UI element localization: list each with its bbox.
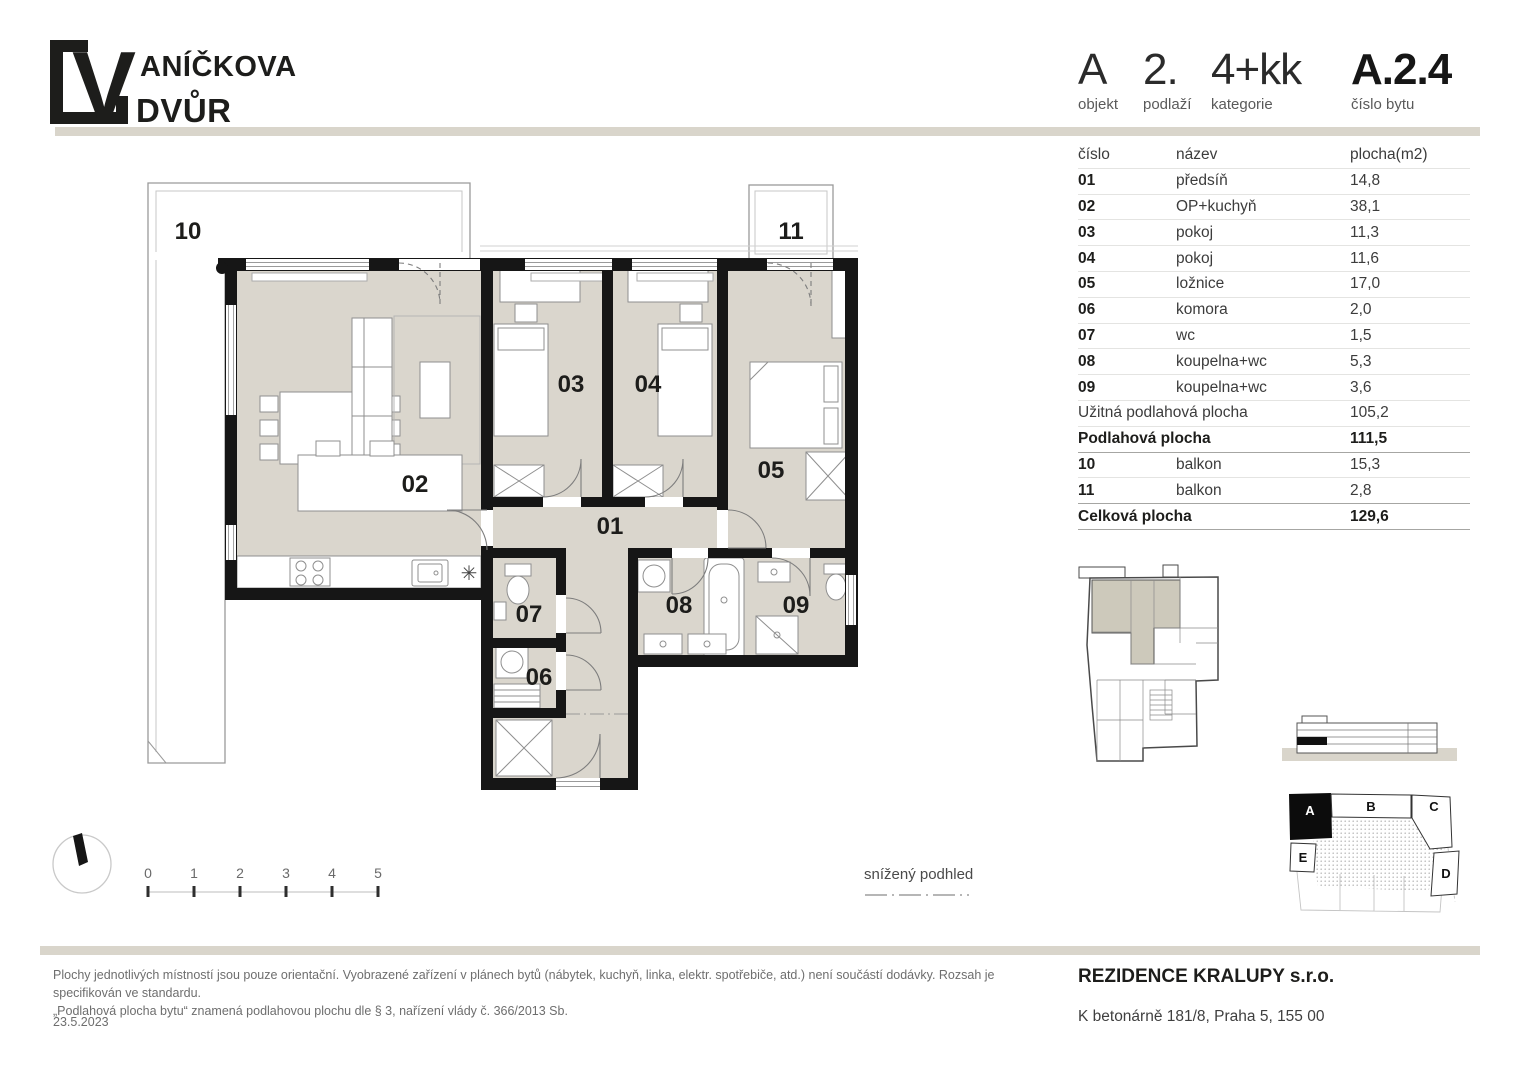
room-area-table: číslo název plocha(m2) 01předsíň14,8 02O… <box>1078 143 1470 530</box>
logo-line2: DVŮR <box>136 89 232 129</box>
scale-tick-label: 5 <box>374 865 382 881</box>
room-label-07: 07 <box>516 601 543 628</box>
table-row: 09koupelna+wc3,6 <box>1078 375 1470 401</box>
col-number: číslo <box>1078 146 1176 164</box>
floor-area-row: Podlahová plocha111,5 <box>1078 427 1470 453</box>
usable-area-row: Užitná podlahová plocha105,2 <box>1078 401 1470 427</box>
room-label-08: 08 <box>666 592 693 619</box>
room-label-01: 01 <box>597 513 624 540</box>
meta-object: A objekt <box>1078 48 1118 113</box>
footer-divider-bar <box>40 946 1480 955</box>
object-label: objekt <box>1078 96 1118 113</box>
brand-logo: V ANÍČKOVA DVŮR <box>48 30 348 138</box>
header-divider-bar <box>55 127 1480 136</box>
lowered-ceiling-legend-line <box>864 890 974 900</box>
unit-label: číslo bytu <box>1351 96 1451 113</box>
lowered-ceiling-legend-label: snížený podhled <box>864 866 973 883</box>
col-name: název <box>1176 146 1350 164</box>
category-label: kategorie <box>1211 96 1301 113</box>
block-a-label: A <box>1305 803 1315 818</box>
table-row: 03pokoj11,3 <box>1078 220 1470 246</box>
room-label-02: 02 <box>402 471 429 498</box>
floorplan-sheet: V ANÍČKOVA DVŮR A objekt 2. podlaží 4+kk… <box>0 0 1527 1080</box>
developer-company: REZIDENCE KRALUPY s.r.o. <box>1078 966 1334 988</box>
table-header-row: číslo název plocha(m2) <box>1078 143 1470 169</box>
disclaimer: Plochy jednotlivých místností jsou pouze… <box>53 966 998 1020</box>
block-e-label: E <box>1299 850 1308 865</box>
balcony-row: 11balkon2,8 <box>1078 478 1470 504</box>
meta-unit-number: A.2.4 číslo bytu <box>1351 48 1451 113</box>
scale-tick-label: 0 <box>144 865 152 881</box>
room-label-04: 04 <box>635 371 662 398</box>
window-sill <box>637 273 713 281</box>
site-block-plan: A B C D E <box>1283 786 1465 936</box>
balcony-row: 10balkon15,3 <box>1078 453 1470 479</box>
table-row: 08koupelna+wc5,3 <box>1078 349 1470 375</box>
table-row: 07wc1,5 <box>1078 324 1470 350</box>
total-area-row: Celková plocha129,6 <box>1078 504 1470 530</box>
scale-tick-label: 2 <box>236 865 244 881</box>
disclaimer-line1: Plochy jednotlivých místností jsou pouze… <box>53 966 998 1002</box>
building-elevation <box>1250 710 1465 770</box>
block-c-label: C <box>1429 799 1439 814</box>
logo-line1: ANÍČKOVA <box>140 49 297 83</box>
table-row: 04pokoj11,6 <box>1078 246 1470 272</box>
meta-category: 4+kk kategorie <box>1211 48 1301 113</box>
meta-floor: 2. podlaží <box>1143 48 1191 113</box>
window-sill <box>531 273 607 281</box>
floor-label: podlaží <box>1143 96 1191 113</box>
category-value: 4+kk <box>1211 48 1301 92</box>
kitchen-counter <box>237 556 481 588</box>
window-sill <box>252 273 367 281</box>
apartment-floorplan: 01 02 03 04 05 06 07 08 09 10 11 ✳ <box>130 170 890 820</box>
object-value: A <box>1078 48 1118 92</box>
disclaimer-line2: „Podlahová plocha bytu“ znamená podlahov… <box>53 1002 998 1020</box>
room-label-09: 09 <box>783 592 810 619</box>
highlighted-floor-segment <box>1297 737 1327 745</box>
date: 23.5.2023 <box>53 1015 109 1029</box>
scale-tick-label: 4 <box>328 865 336 881</box>
unit-value: A.2.4 <box>1351 48 1451 92</box>
table-row: 06komora2,0 <box>1078 298 1470 324</box>
room-label-05: 05 <box>758 457 785 484</box>
scale-bar: 0 1 2 3 4 5 <box>140 860 390 905</box>
corner-column <box>216 262 228 274</box>
logo-mark-letter: V <box>72 32 136 138</box>
block-b-label: B <box>1366 799 1375 814</box>
scale-tick-label: 1 <box>190 865 198 881</box>
col-area: plocha(m2) <box>1350 146 1470 164</box>
scale-tick-label: 3 <box>282 865 290 881</box>
floor-value: 2. <box>1143 48 1191 92</box>
balcony-label-11: 11 <box>778 218 803 245</box>
north-compass-icon <box>42 824 132 914</box>
floor-keyplan <box>1072 552 1232 770</box>
table-row: 01předsíň14,8 <box>1078 169 1470 195</box>
table-row: 02OP+kuchyň38,1 <box>1078 195 1470 221</box>
developer-address: K betonárně 181/8, Praha 5, 155 00 <box>1078 1008 1324 1026</box>
room-label-06: 06 <box>526 664 553 691</box>
balcony-label-10: 10 <box>175 218 202 245</box>
block-d-label: D <box>1441 866 1450 881</box>
fridge-star-icon: ✳ <box>461 563 478 585</box>
table-row: 05ložnice17,0 <box>1078 272 1470 298</box>
room-label-03: 03 <box>558 371 585 398</box>
